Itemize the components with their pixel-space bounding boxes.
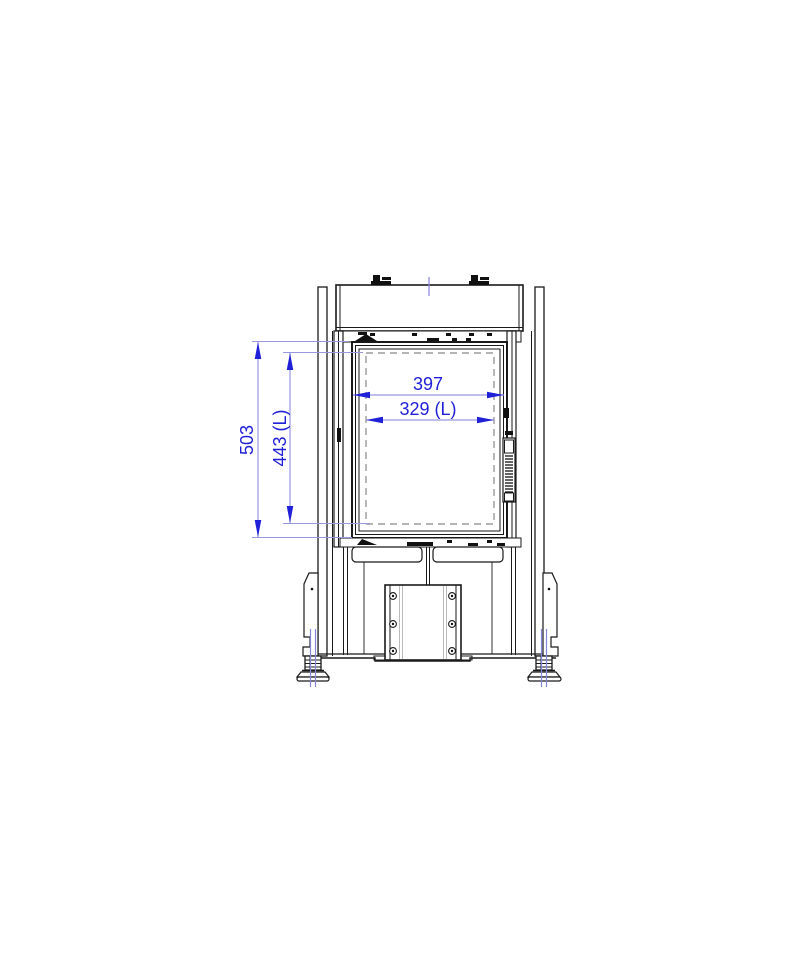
dim-label-width-inner: 329 (L)	[399, 399, 456, 419]
dim-height-inner: 443 (L)	[270, 353, 293, 523]
left-frame-rail	[318, 287, 333, 656]
ash-tray-right	[433, 547, 503, 562]
top-bolt-left	[371, 275, 391, 285]
support-rod	[427, 547, 430, 585]
door-left-pin	[337, 428, 341, 442]
technical-drawing: 503 443 (L) 397 329 (L)	[0, 0, 800, 960]
upper-mount-rail	[340, 331, 521, 342]
spring-coil	[505, 456, 513, 492]
dim-label-height-outer: 503	[237, 425, 257, 455]
door-frame	[352, 342, 507, 538]
latch-nub	[504, 408, 509, 418]
mounting-bracket	[385, 585, 461, 660]
dim-label-height-inner: 443 (L)	[270, 409, 290, 466]
top-bolt-right	[469, 275, 489, 285]
lower-mount-rail	[340, 538, 521, 547]
leveling-foot-right	[528, 656, 561, 681]
dim-height-outer: 503	[237, 342, 261, 537]
gusset-right	[543, 573, 558, 656]
drawing-canvas: 503 443 (L) 397 329 (L)	[0, 0, 800, 960]
ash-tray-left	[352, 547, 422, 562]
leveling-foot-left	[297, 656, 329, 681]
right-frame-rail	[532, 287, 545, 656]
dim-label-width-outer: 397	[413, 374, 443, 394]
